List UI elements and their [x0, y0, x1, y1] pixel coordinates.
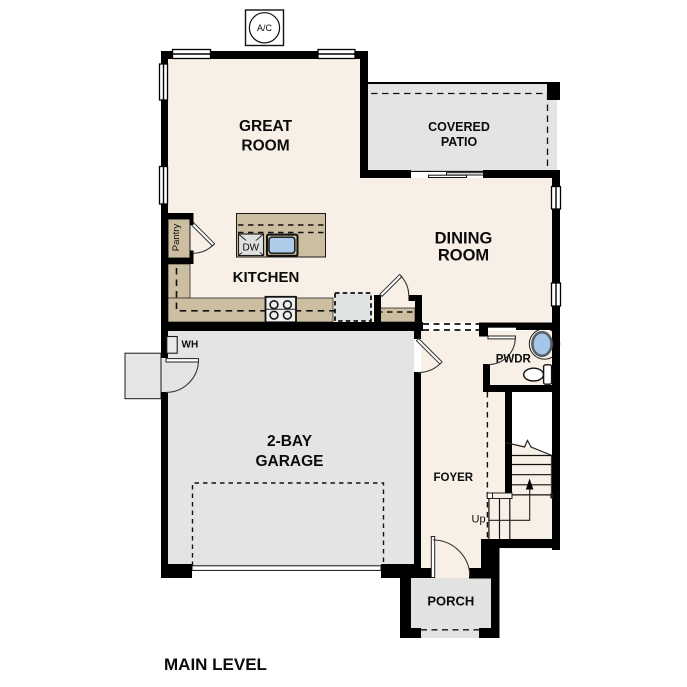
svg-text:PORCH: PORCH [427, 594, 474, 609]
svg-text:2-BAY: 2-BAY [267, 433, 313, 450]
svg-text:WH: WH [182, 340, 199, 351]
svg-text:FOYER: FOYER [433, 472, 473, 484]
svg-text:Up: Up [472, 514, 486, 526]
svg-text:MAIN LEVEL: MAIN LEVEL [164, 655, 267, 674]
svg-text:ROOM: ROOM [241, 138, 289, 155]
svg-text:COVERED: COVERED [428, 120, 490, 134]
svg-text:Pantry: Pantry [171, 224, 182, 252]
svg-text:ROOM: ROOM [438, 247, 489, 265]
svg-text:KITCHEN: KITCHEN [233, 269, 300, 286]
svg-text:DINING: DINING [435, 230, 493, 248]
svg-text:PATIO: PATIO [441, 135, 478, 149]
svg-text:A/C: A/C [257, 23, 273, 33]
svg-text:PWDR: PWDR [496, 354, 532, 366]
svg-text:GREAT: GREAT [239, 118, 293, 135]
svg-text:GARAGE: GARAGE [255, 453, 323, 470]
svg-text:DW: DW [242, 243, 259, 254]
